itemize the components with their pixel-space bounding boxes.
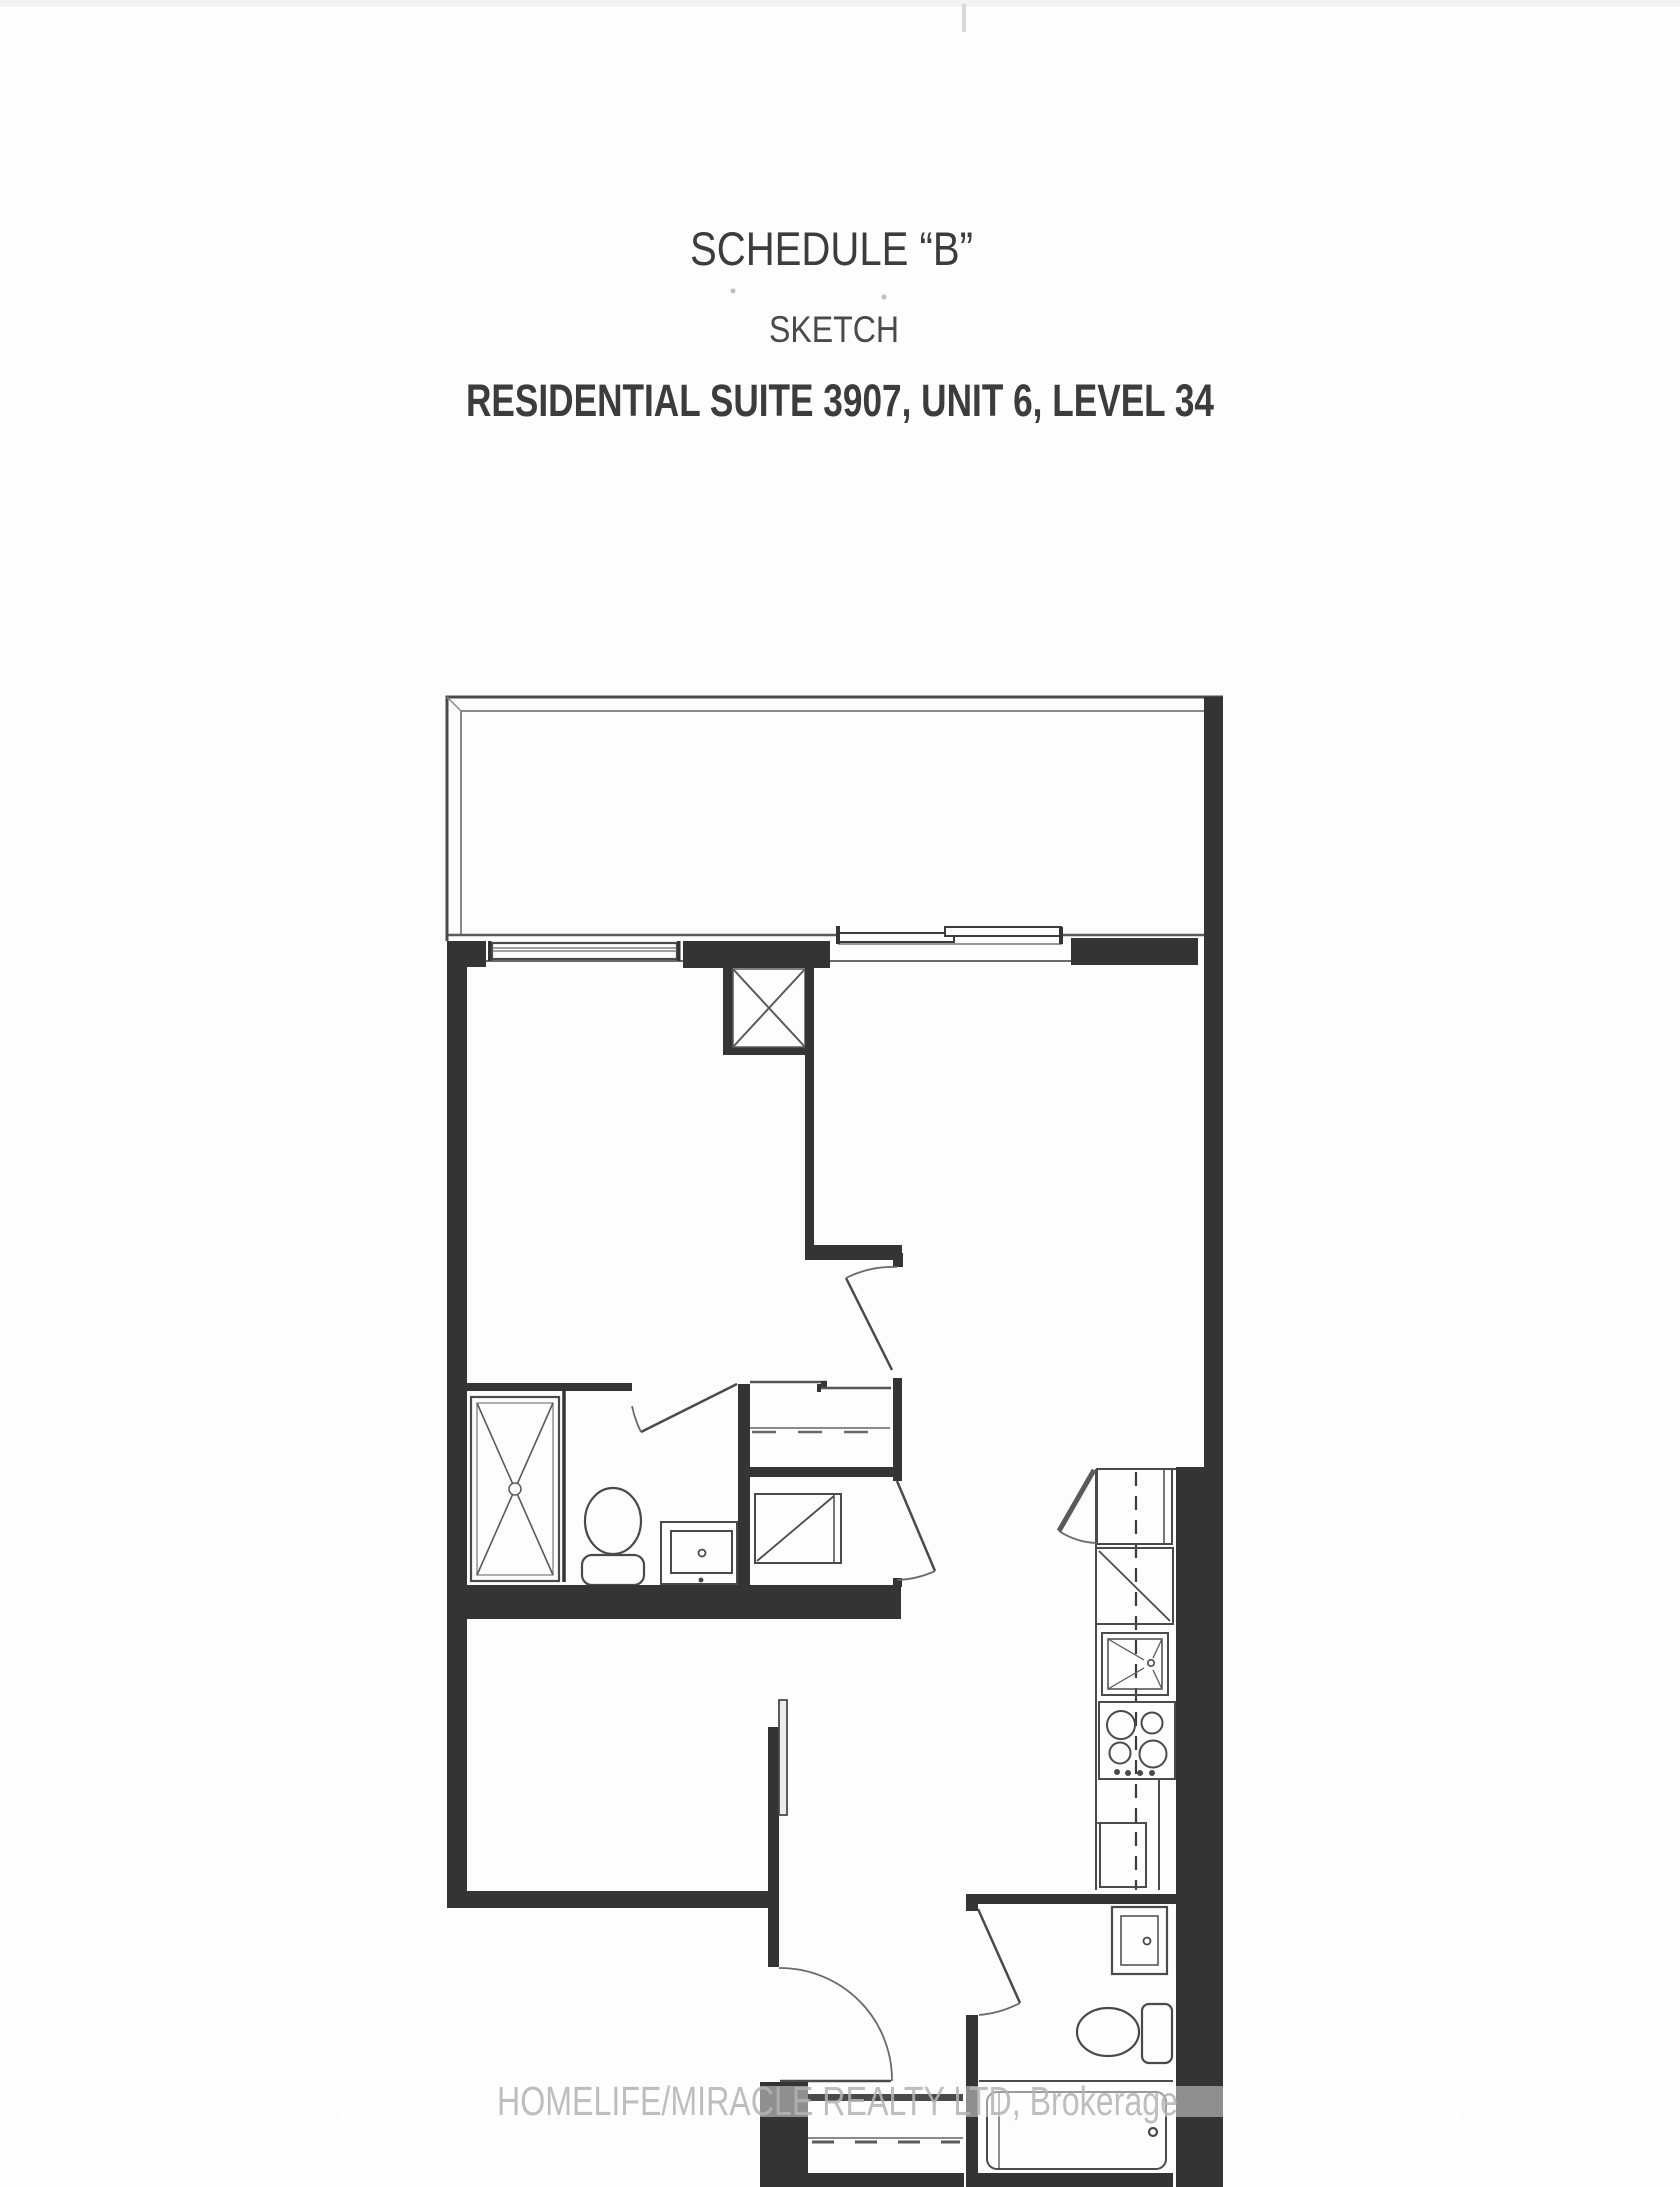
svg-text:SKETCH: SKETCH xyxy=(769,309,899,350)
svg-text:SCHEDULE “B”: SCHEDULE “B” xyxy=(690,222,973,275)
svg-text:HOMELIFE/MIRACLE REALTY LTD, B: HOMELIFE/MIRACLE REALTY LTD, Brokerage xyxy=(497,2078,1178,2124)
svg-text:RESIDENTIAL SUITE 3907, UNIT 6: RESIDENTIAL SUITE 3907, UNIT 6, LEVEL 34 xyxy=(466,375,1214,426)
